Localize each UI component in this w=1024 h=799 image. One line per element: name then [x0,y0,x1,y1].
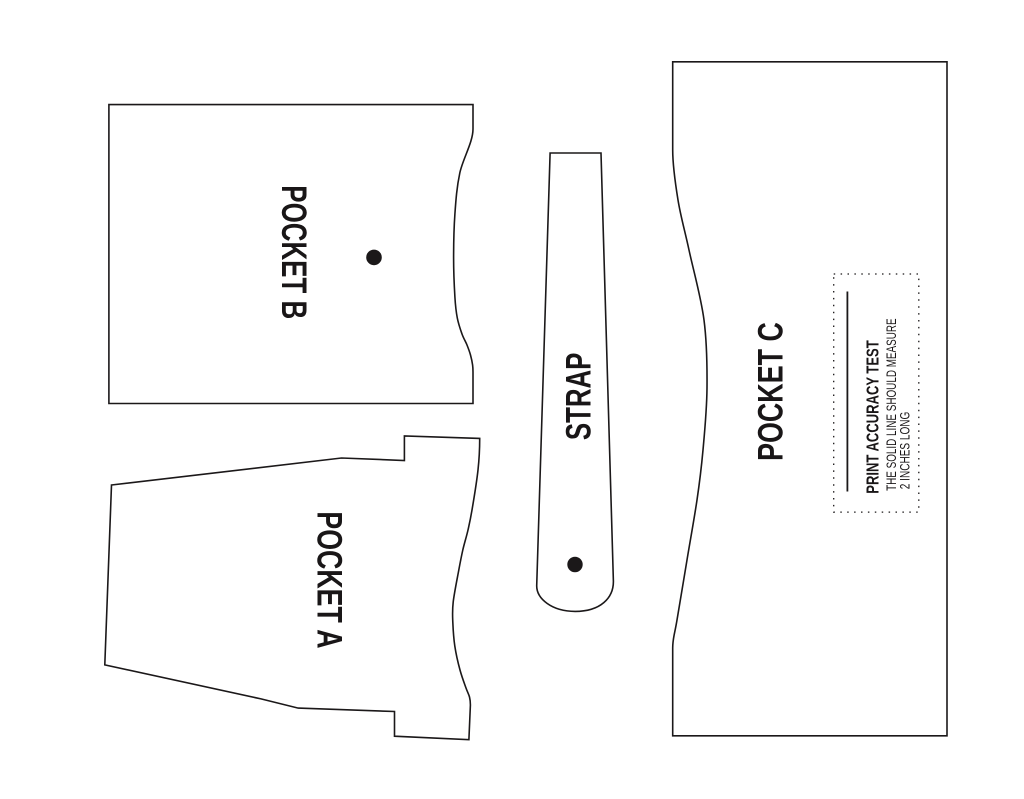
svg-text:POCKET B: POCKET B [274,185,313,319]
svg-text:POCKET C: POCKET C [752,322,791,461]
svg-text:POCKET A: POCKET A [310,511,349,648]
svg-text:STRAP: STRAP [560,353,599,441]
svg-text:2 INCHES LONG: 2 INCHES LONG [897,412,912,490]
svg-text:PRINT ACCURACY TEST: PRINT ACCURACY TEST [863,340,883,494]
